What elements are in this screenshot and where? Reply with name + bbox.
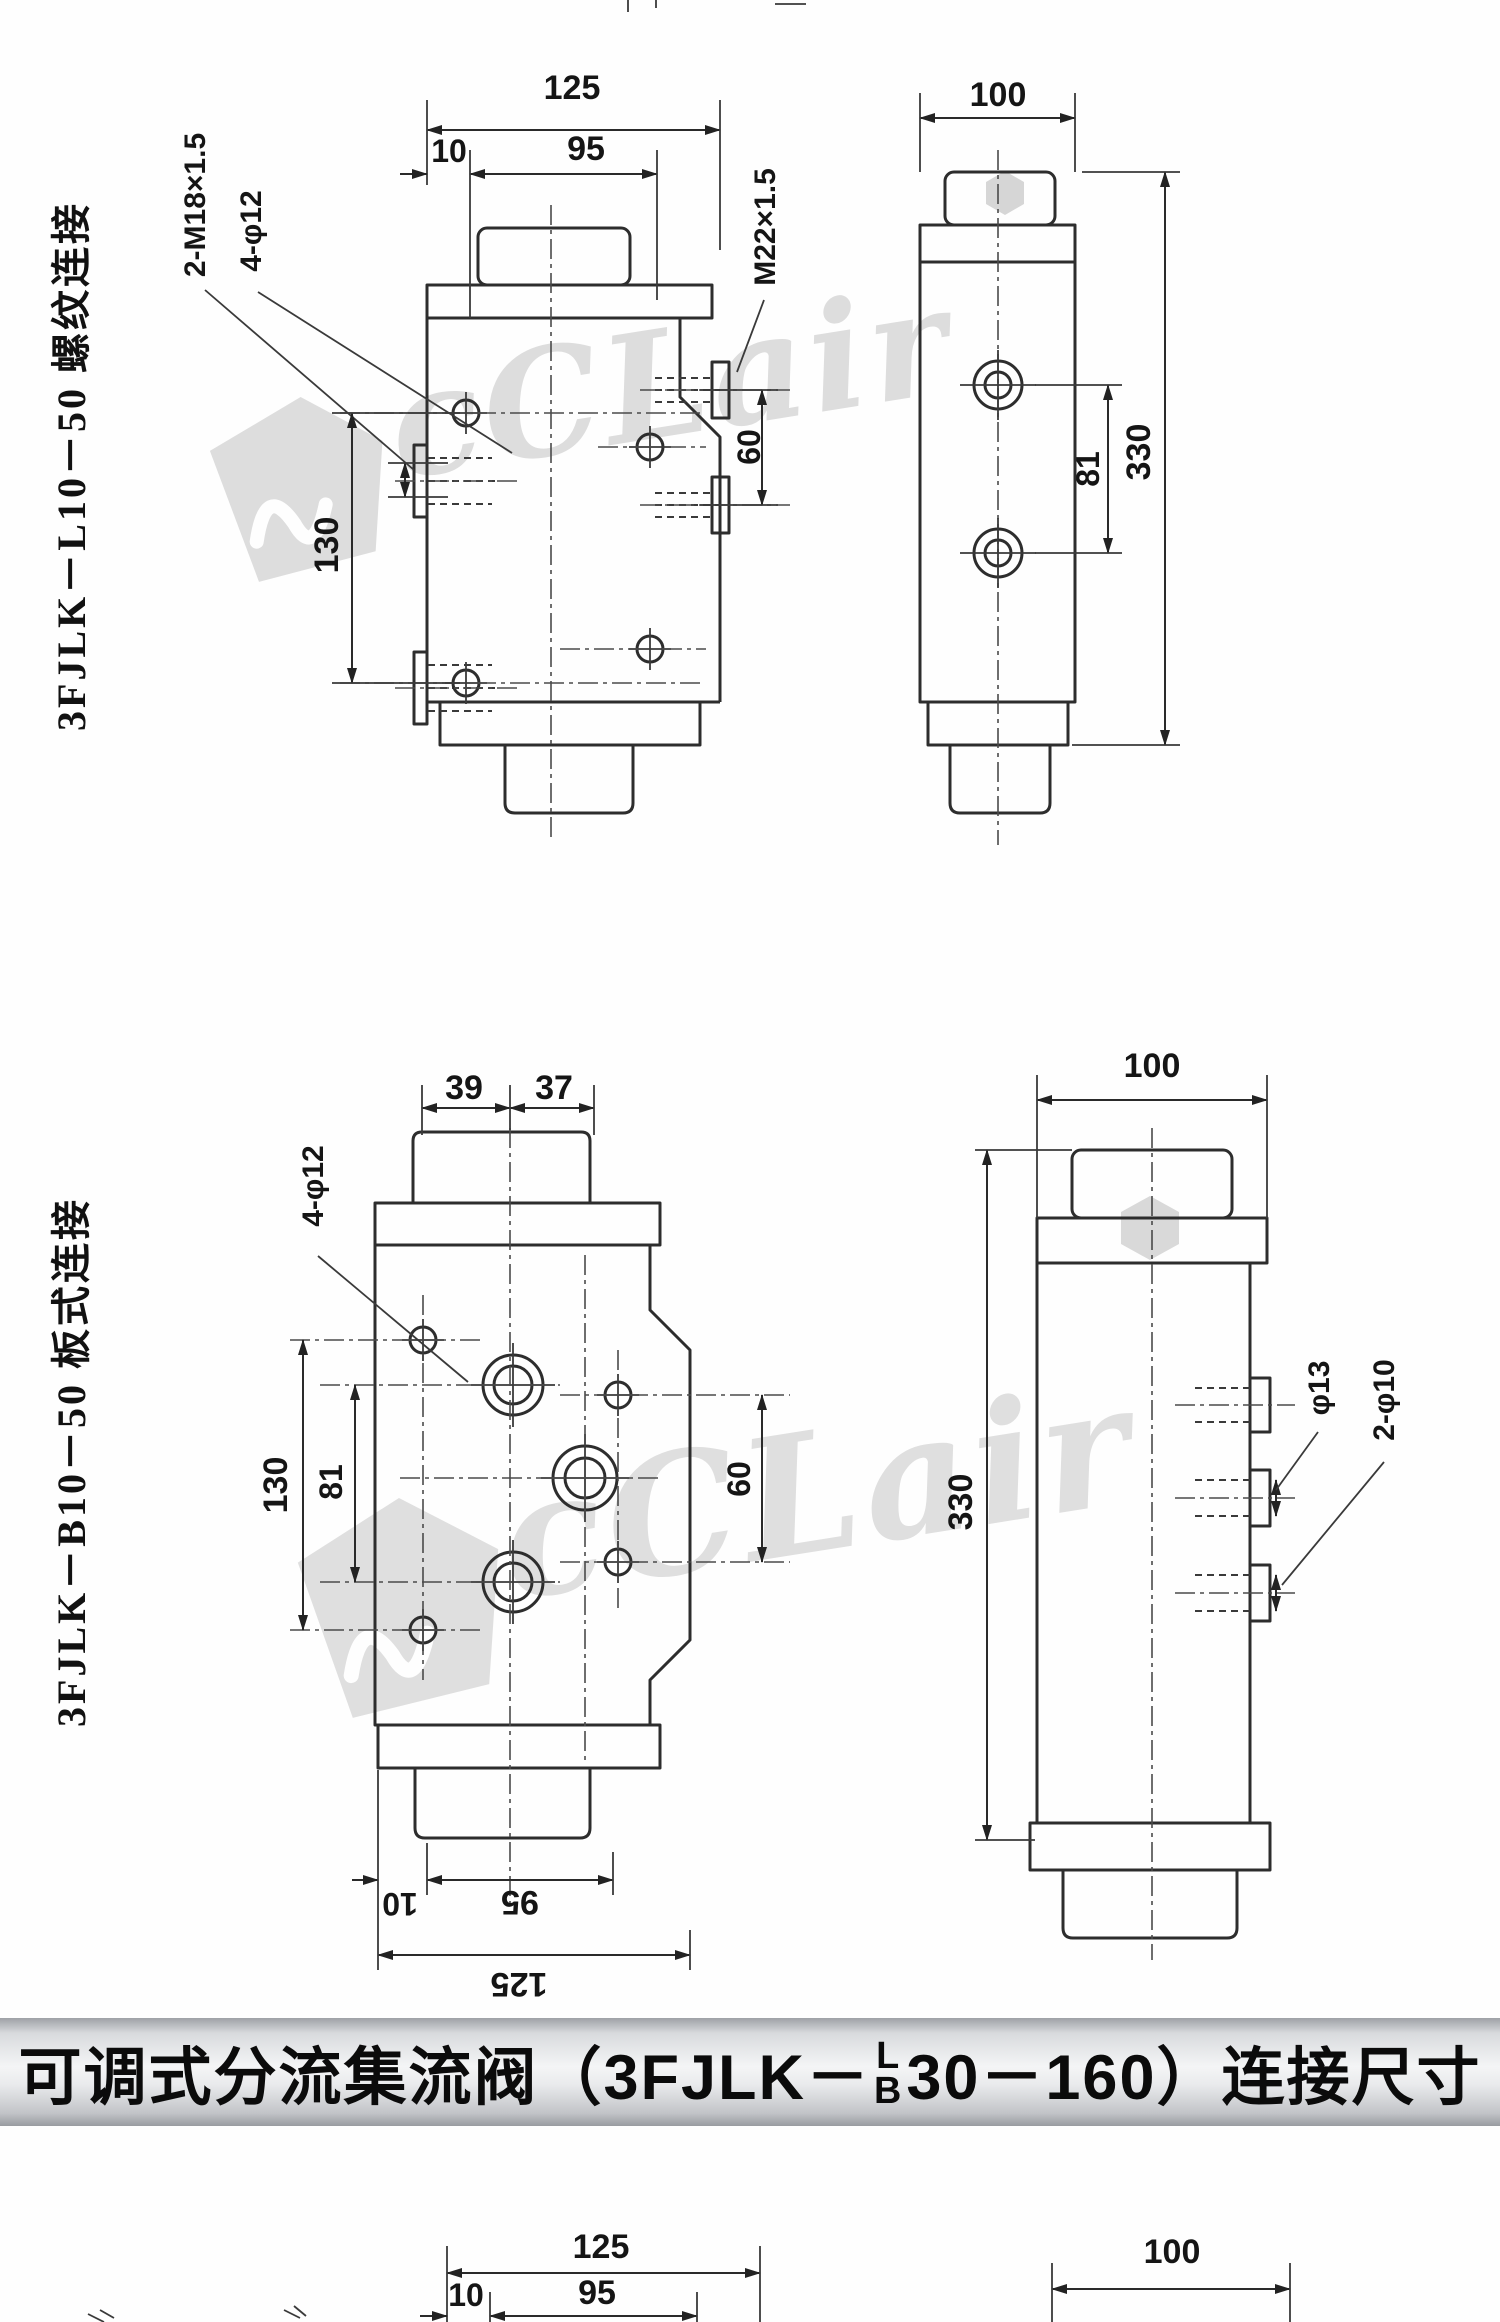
d2s-callout-phi13: φ13 — [1305, 1361, 1335, 1416]
d2s-right-port-bosses — [1175, 1378, 1295, 1621]
drawing3-partial — [88, 2246, 1290, 2322]
d1f-bottom-flange — [440, 702, 700, 745]
technical-drawing-page: cCLair cCLair — [0, 0, 1500, 2322]
title-fraction: LB — [874, 2039, 903, 2109]
drawing2-side-view — [975, 1075, 1384, 1960]
drawing-linework: cCLair cCLair — [0, 0, 1500, 2322]
d3-dim-95: 95 — [578, 2276, 616, 2310]
cropped-remnant-lines-top — [628, 0, 806, 12]
d1s-bottom-boss — [950, 745, 1050, 813]
watermark-logo-middle: cCLair — [285, 1346, 1162, 1723]
d1s-dim-81: 81 — [1072, 451, 1104, 487]
d2f-dim-95-bottom: 95 — [501, 1885, 539, 1919]
d2s-dim-100: 100 — [1124, 1049, 1181, 1083]
d2s-leader-lines — [1276, 1432, 1384, 1585]
d2s-bottom-flange — [1030, 1823, 1270, 1870]
d2f-dim-60: 60 — [723, 1461, 755, 1497]
d2s-callout-2phi10: 2-φ10 — [1370, 1359, 1400, 1441]
d1f-callout-2m18: 2-M18×1.5 — [181, 133, 211, 277]
d2f-dim-130: 130 — [259, 1457, 293, 1514]
d1f-dim-95: 95 — [567, 132, 605, 166]
d3-dim-10: 10 — [448, 2279, 484, 2311]
d2s-bottom-boss — [1063, 1870, 1237, 1938]
drawing1-side-label: 3FJLK－L10－50 螺纹连接 — [52, 201, 92, 731]
svg-text:cCLair: cCLair — [487, 1346, 1153, 1639]
d1f-callout-4phi12: 4-φ12 — [237, 190, 267, 272]
d1f-callout-m22: M22×1.5 — [751, 168, 781, 286]
title-fraction-top: L — [876, 2039, 901, 2074]
d3-dim-100: 100 — [1144, 2235, 1201, 2269]
title-bar: 可调式分流集流阀（3FJLK－LB30－160）连接尺寸 — [0, 2018, 1500, 2126]
d2f-leader-line — [318, 1256, 468, 1382]
d2f-dim-37: 37 — [535, 1071, 573, 1105]
d2f-callout-4phi12: 4-φ12 — [299, 1145, 329, 1227]
svg-text:cCLair: cCLair — [377, 252, 968, 513]
d3-dim-125: 125 — [573, 2230, 630, 2264]
d1f-dim-10: 10 — [431, 135, 467, 167]
watermark-dot-middle — [1121, 1196, 1179, 1260]
d2f-top-boss — [413, 1132, 590, 1203]
d1f-dim-125: 125 — [544, 71, 601, 105]
d1f-bottom-boss — [505, 745, 633, 813]
d1s-dim-330: 330 — [1122, 424, 1156, 481]
d2s-dim-330: 330 — [944, 1474, 978, 1531]
cropped-remnant-lines-bottom — [88, 2306, 306, 2322]
d1f-dim-60: 60 — [733, 429, 765, 465]
d2f-bottom-boss — [415, 1768, 590, 1838]
drawing2-side-label: 3FJLK－B10－50 板式连接 — [52, 1197, 92, 1727]
d2f-dim-125-bottom: 125 — [491, 1967, 548, 2001]
watermark-dot-top — [986, 171, 1024, 215]
d1f-top-cap — [478, 228, 630, 285]
d1s-dim-100: 100 — [970, 78, 1027, 112]
title-fraction-bottom: B — [874, 2074, 903, 2109]
d1f-dim-130: 130 — [310, 517, 344, 574]
title-suffix: 30－160）连接尺寸 — [906, 2027, 1481, 2118]
d2f-flange — [375, 1203, 660, 1245]
title-prefix: 可调式分流集流阀（3FJLK－ — [18, 2027, 871, 2118]
d2f-dim-10-bottom: 10 — [382, 1888, 418, 1920]
d2f-dim-81: 81 — [315, 1464, 347, 1500]
d2f-dim-39: 39 — [445, 1071, 483, 1105]
d2f-bottom-flange — [378, 1725, 660, 1768]
